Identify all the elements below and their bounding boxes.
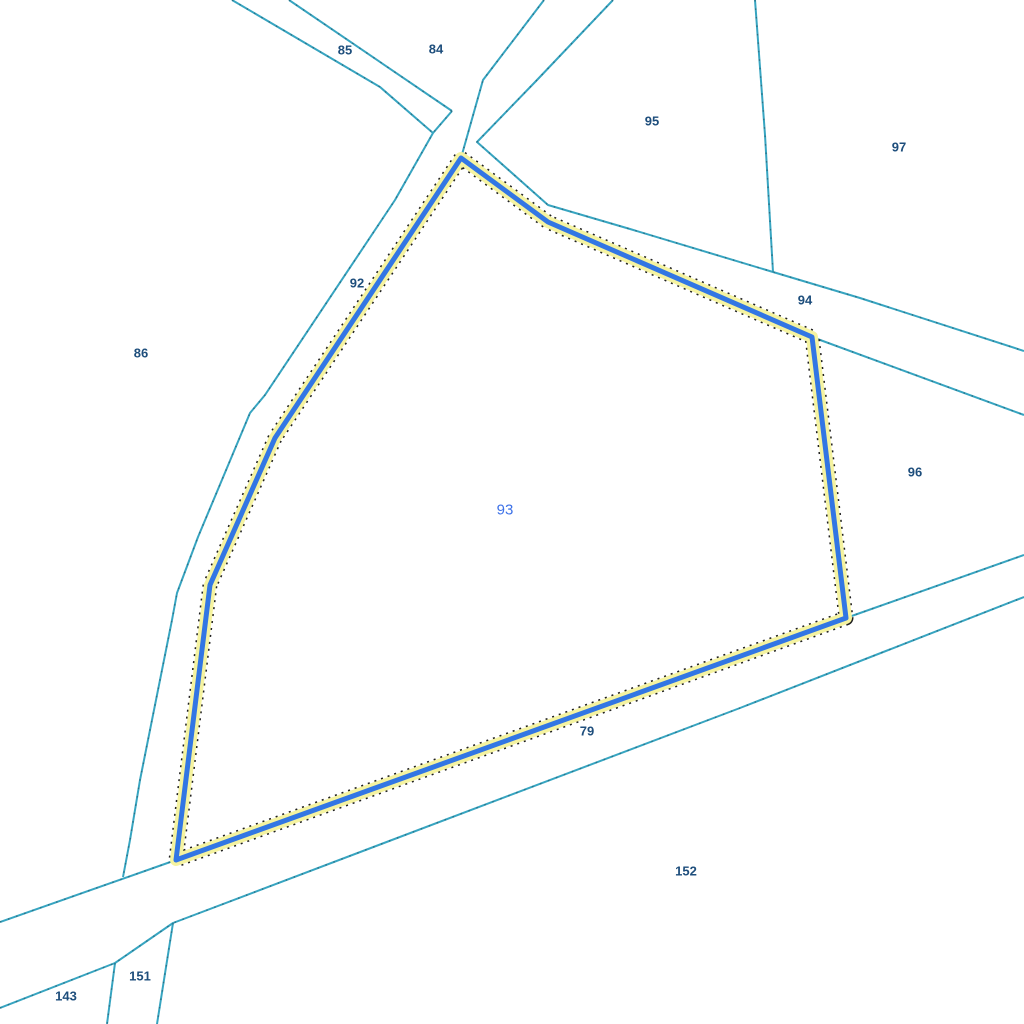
parcel-label-143: 143 [55,989,77,1004]
parcel-label-79: 79 [580,724,594,739]
parcel-label-84: 84 [429,42,444,57]
parcel-label-92: 92 [350,276,364,291]
parcel-label-97: 97 [892,140,906,155]
parcel-label-152: 152 [675,864,697,879]
parcel-label-86: 86 [134,346,148,361]
parcel-label-96: 96 [908,465,922,480]
parcel-label-85: 85 [338,43,352,58]
parcel-label-94: 94 [798,293,813,308]
parcel-label-95: 95 [645,114,659,129]
selected-parcel-label: 93 [497,502,514,519]
cadastral-map[interactable]: 85849597928694967915215114393 [0,0,1024,1024]
cadastral-map-canvas[interactable]: 85849597928694967915215114393 [0,0,1024,1024]
parcel-label-151: 151 [129,969,151,984]
